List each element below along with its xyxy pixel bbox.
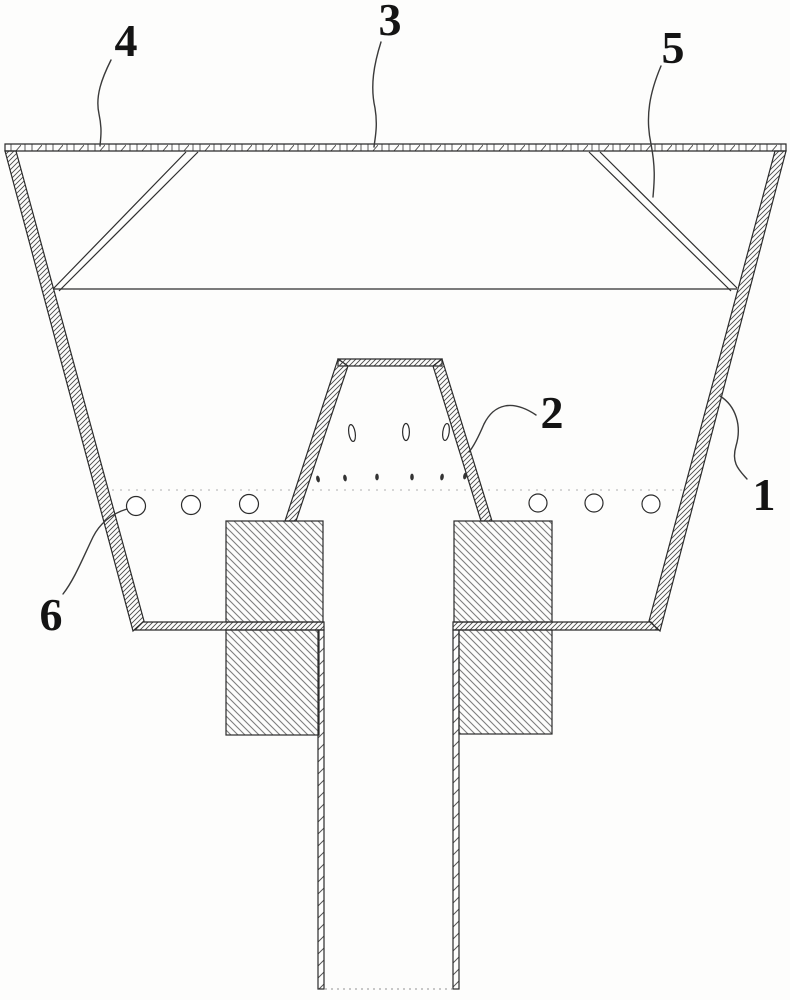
upper-block-left xyxy=(226,521,323,622)
callout-label-5: 5 xyxy=(662,22,685,73)
cone-slot xyxy=(348,424,357,442)
discharge-tube xyxy=(318,630,459,989)
right-corner-brace xyxy=(589,152,737,291)
callout-leader-3 xyxy=(373,42,381,147)
tube-right-wall xyxy=(453,630,459,989)
callout-label-3: 3 xyxy=(379,0,402,45)
upper-block-right xyxy=(454,521,552,622)
cone-vent-dot xyxy=(316,475,321,482)
callout-labels: 1 2 3 4 5 6 xyxy=(40,0,776,640)
callout-leader-2 xyxy=(469,405,536,452)
top-rim-plate xyxy=(5,144,786,151)
cone-right-wall xyxy=(433,359,492,521)
callout-leader-5 xyxy=(648,66,661,197)
wall-hole xyxy=(240,495,259,514)
sidewall-hole-row xyxy=(104,490,688,516)
callout-label-1: 1 xyxy=(753,469,776,520)
inner-cone xyxy=(285,359,492,521)
tube-left-wall xyxy=(318,630,324,989)
wall-hole xyxy=(127,497,146,516)
patent-figure-canvas: 1 2 3 4 5 6 xyxy=(0,0,790,1000)
callout-label-2: 2 xyxy=(541,387,564,438)
cone-left-wall xyxy=(285,359,348,521)
cone-vent-dot xyxy=(410,474,414,481)
hopper-floor-left xyxy=(135,622,324,630)
left-corner-brace xyxy=(53,152,198,291)
wall-hole xyxy=(182,496,201,515)
callout-leader-1 xyxy=(720,396,747,479)
lower-block-right xyxy=(459,630,552,734)
right-sidewall xyxy=(649,151,786,631)
cone-vent-dot xyxy=(440,473,445,480)
cone-vent-dot xyxy=(375,474,379,481)
wall-hole xyxy=(642,495,660,513)
cone-top-rim xyxy=(338,359,442,366)
lower-block-left xyxy=(226,630,319,735)
callout-label-6: 6 xyxy=(40,589,63,640)
cone-vent-dot-row xyxy=(316,472,468,482)
callout-leader-4 xyxy=(98,60,111,146)
callout-label-4: 4 xyxy=(115,15,138,66)
wall-hole xyxy=(529,494,547,512)
hopper-floor-right xyxy=(453,622,658,630)
callout-leaders xyxy=(63,42,747,594)
wall-hole xyxy=(585,494,603,512)
cone-slot-row xyxy=(348,423,451,442)
patent-figure: 1 2 3 4 5 6 xyxy=(0,0,790,1000)
cone-slot xyxy=(403,424,410,441)
left-sidewall xyxy=(5,151,144,631)
cone-slot xyxy=(442,423,451,441)
hopper-assembly xyxy=(5,144,786,631)
cone-vent-dot xyxy=(343,474,348,481)
